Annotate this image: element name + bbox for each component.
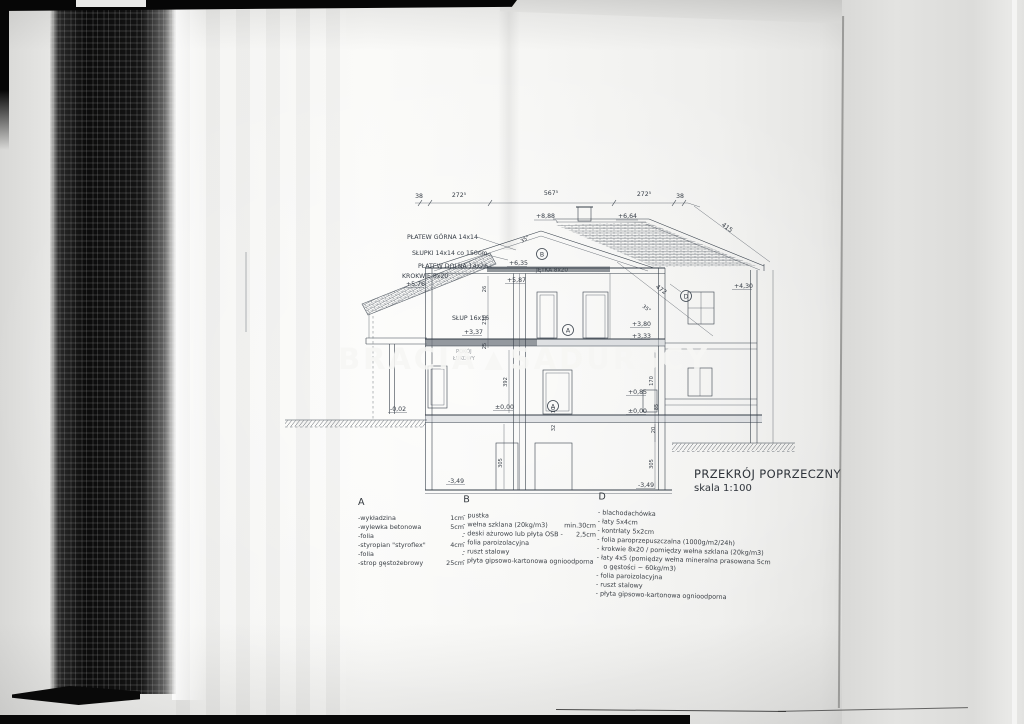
main-section [425, 268, 762, 494]
scanner-left-black-band [50, 0, 176, 694]
dim-38-left: 38 [415, 193, 423, 200]
platew-gorna-label: PŁATEW GÓRNA 14x14 [407, 232, 478, 241]
level-eaves-right: +6,64 [618, 213, 637, 220]
vdim-32: 32 [551, 425, 557, 431]
vdim-305-left: 305 [498, 458, 504, 468]
legend-a-item: -folia- [358, 550, 464, 559]
vdim-10: 10 [551, 407, 557, 413]
vdim-170: 170 [649, 376, 655, 386]
dim-272-left: 272⁵ [452, 192, 467, 199]
legend-a-item: -folia- [358, 532, 464, 541]
legend-a-item: -wykładzina1cm [358, 514, 464, 523]
vertical-dimensions: 26 230 25 392 305 305 170 85 20 10 32 [482, 276, 660, 489]
roof-angle-right: 35° [641, 304, 652, 314]
marker-d: D [684, 294, 689, 301]
level-collar-bottom: +5,87 [507, 277, 526, 284]
legend-a-item: -strop gęstożebrowy25cm [358, 559, 464, 568]
level-upper-left: +3,37 [464, 329, 483, 336]
legend-section-a: A -wykładzina1cm -wylewka betonowa5cm -f… [358, 498, 464, 568]
vdim-305-right: 305 [649, 459, 655, 469]
roof-structure-labels: PŁATEW GÓRNA 14x14 SŁUPKI 14x14 co 150cm… [402, 232, 516, 288]
vdim-230: 230 [482, 315, 488, 325]
watermark-left: BRACIA [338, 342, 477, 376]
jetka-label: JĘTKA 8x20 [535, 268, 568, 274]
vdim-392: 392 [503, 377, 509, 387]
legend-a-item: -styropian "styroflex"4cm [358, 541, 464, 550]
level-upper-right-a: +3,80 [632, 321, 651, 328]
level-garage-floor: -0,02 [390, 406, 406, 413]
level-wing-plate: +4,30 [734, 283, 753, 290]
dim-567: 567⁵ [544, 190, 559, 197]
vdim-26: 26 [482, 286, 488, 292]
level-wing-floor: +0,85 [628, 389, 647, 396]
drawing-scale: skala 1:100 [694, 483, 841, 494]
dim-472-slope: 472 [654, 283, 668, 296]
level-ridge: +8,88 [536, 213, 555, 220]
dim-38-right: 38 [676, 193, 684, 200]
watermark: BRACIA▲SADURSCY [338, 342, 710, 376]
roof-angle-left: 35° [520, 234, 531, 244]
level-left-eaves: +5,76 [406, 281, 425, 288]
level-upper-right-b: +3,33 [632, 333, 651, 340]
scanner-top-gap [76, 0, 146, 7]
level-ground-b: ±0,00 [628, 408, 647, 415]
level-ground-a: ±0,00 [495, 404, 514, 411]
legend-section-d: D - blachodachówka - łaty 5x4cm - kontrł… [596, 492, 784, 603]
platew-dolna-label: PŁATEW DOLNA 14x26 [418, 263, 488, 270]
marker-a-upper: A [566, 328, 571, 335]
level-basement-a: -3,49 [448, 478, 464, 485]
drawing-title: PRZEKRÓJ POPRZECZNY [694, 467, 841, 481]
watermark-triangle-icon: ▲ [484, 345, 502, 373]
legend-b-item: - płyta gipsowo-kartonowa ognioodporna [463, 556, 596, 566]
level-collar-top: +6,35 [509, 260, 528, 267]
legend-section-b: B - pustka - wełna szklana (20kg/m3)min.… [463, 495, 597, 566]
slupki-label: SŁUPKI 14x14 co 150cm [412, 250, 487, 257]
vdim-85: 85 [654, 404, 660, 410]
watermark-right: SADURSCY [510, 342, 710, 376]
legend-b-header: B [463, 495, 596, 505]
vdim-20: 20 [651, 427, 657, 433]
legend-a-header: A [358, 498, 464, 507]
title-block: PRZEKRÓJ POPRZECZNY skala 1:100 [694, 467, 841, 494]
level-basement-b: -3,49 [638, 482, 654, 489]
dim-272-right: 272⁵ [637, 191, 652, 198]
marker-b: B [540, 252, 544, 259]
scanner-bottom-strip [0, 715, 690, 724]
dim-415-slope: 415 [720, 221, 734, 234]
scanner-left-edge [0, 0, 9, 150]
legend-a-item: -wylewka betonowa5cm [358, 523, 464, 532]
